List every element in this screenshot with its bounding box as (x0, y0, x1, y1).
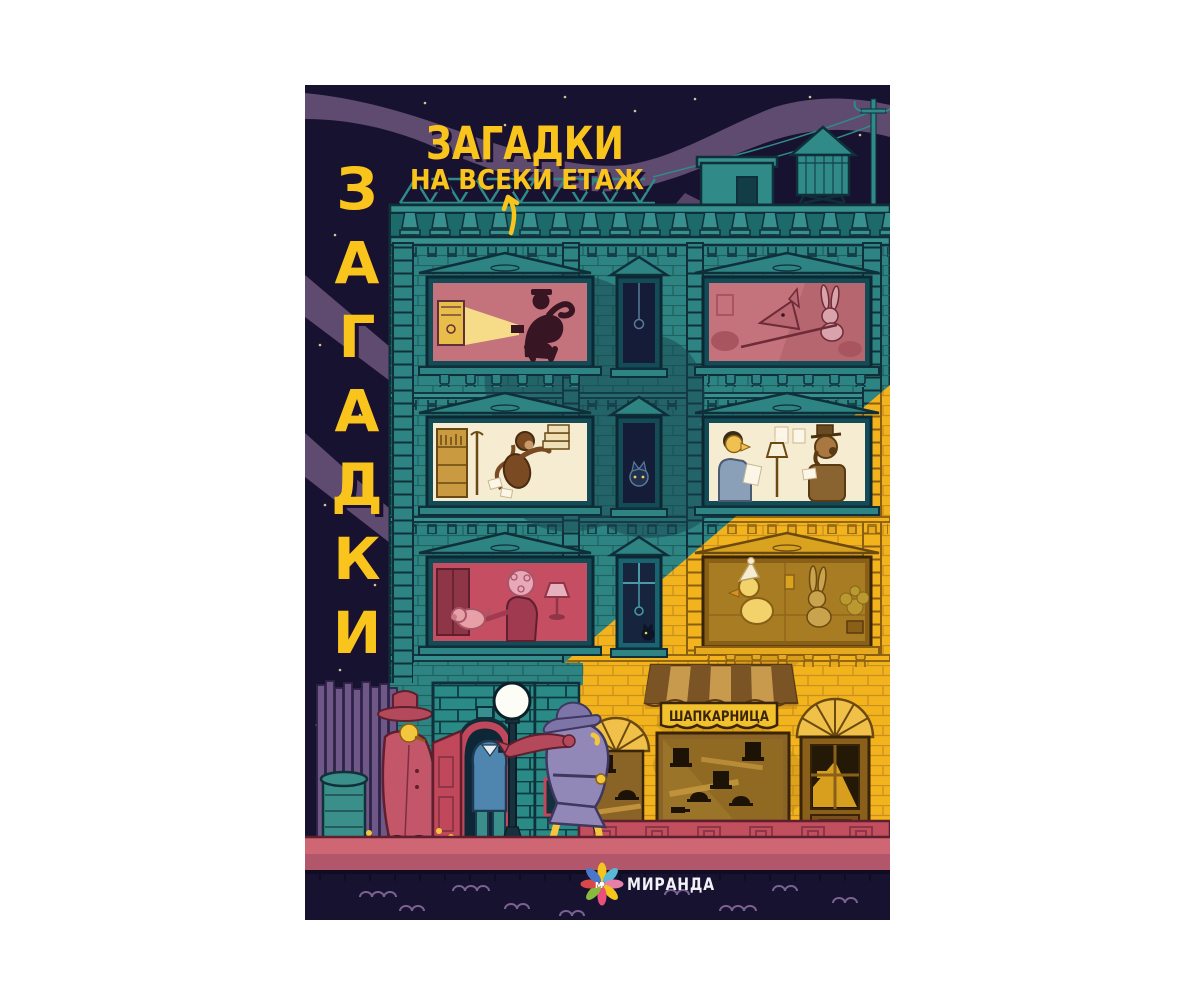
window-mid-middle (611, 397, 667, 517)
vertical-letter-4: А (335, 377, 380, 445)
trash-can (321, 772, 367, 839)
shop-awning (644, 665, 797, 706)
roof-sign-line1: ЗАГАДКИ (426, 117, 624, 170)
roof-cornice (390, 205, 890, 257)
vertical-title: З А Г А Д К И З А Г А Д К И (331, 155, 387, 670)
logo-initial: М (595, 881, 603, 890)
vertical-letter-1: З (336, 155, 377, 223)
rooftop-shed (697, 157, 777, 205)
shop-sign-board: ШАПКАРНИЦА (661, 703, 777, 728)
vertical-letter-2: А (335, 229, 380, 297)
vertical-letter-5: Д (331, 451, 383, 519)
window-mid-right (695, 393, 879, 515)
sidewalk (305, 837, 890, 871)
book-cover: ШАПКАРНИЦА (305, 85, 890, 920)
shop-sign-text: ШАПКАРНИЦА (669, 709, 769, 725)
window-mid-left (419, 393, 601, 515)
open-door (433, 731, 461, 845)
window-low-right (695, 533, 879, 667)
window-top-middle (611, 257, 667, 377)
window-top-right (695, 253, 879, 387)
window-low-left (419, 533, 601, 655)
publisher-name: МИРАНДА (627, 875, 715, 894)
lamp-globe (494, 683, 530, 719)
window-low-middle (611, 537, 667, 657)
vertical-letter-3: Г (339, 303, 376, 371)
leaning-character (378, 691, 436, 843)
shop-display-window (657, 733, 789, 825)
flower-logo-icon: М (581, 863, 624, 906)
vertical-letter-6: К (333, 525, 380, 593)
roof-sign-line2: НА ВСЕКИ ЕТАЖ (410, 164, 644, 196)
vertical-letter-7: И (333, 599, 382, 667)
